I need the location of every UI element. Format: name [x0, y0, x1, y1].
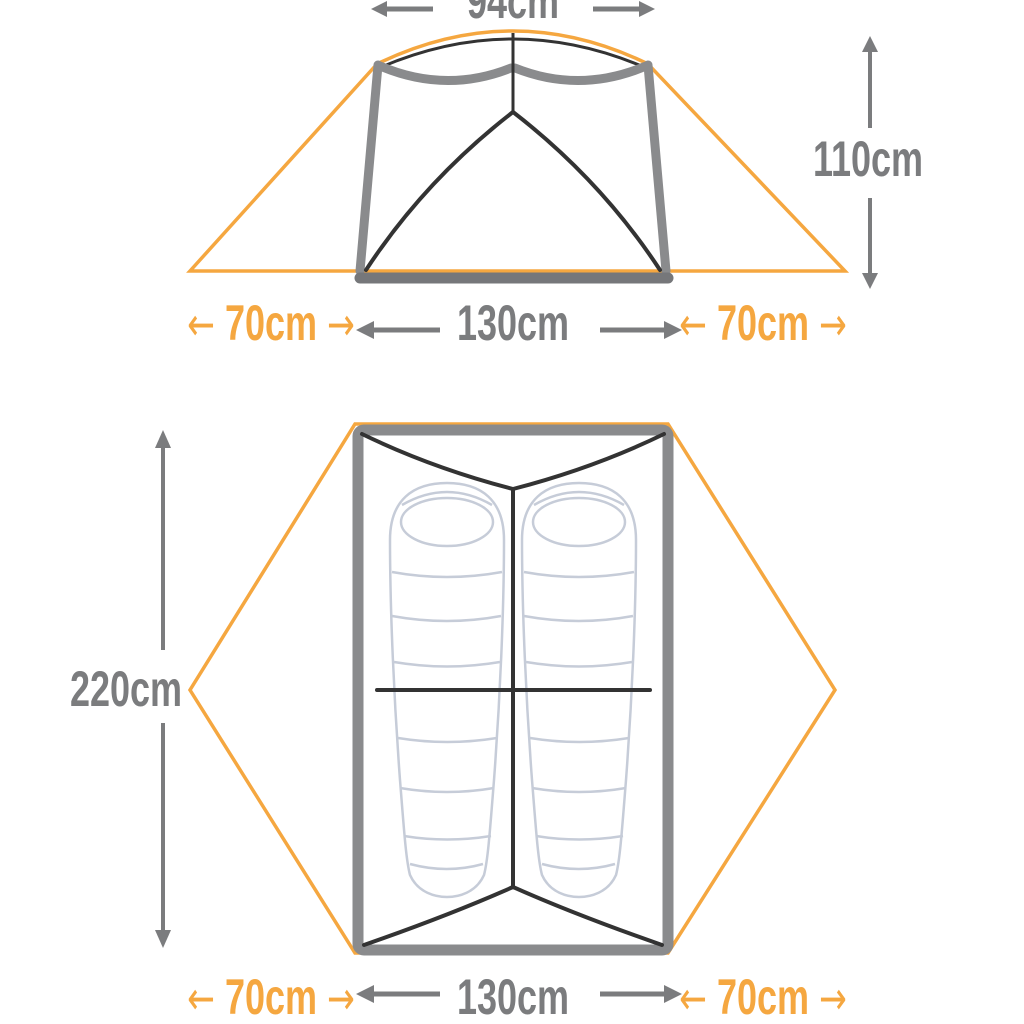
length-label: 220cm — [70, 664, 182, 714]
height-label: 110cm — [813, 134, 923, 184]
floor-plan — [190, 424, 835, 953]
top-width-arrow-left-head — [371, 1, 387, 17]
left-arrow-icon: ← — [187, 971, 215, 1024]
front-floor-width-label: 130cm — [457, 298, 569, 348]
right-arrow-icon: → — [327, 297, 355, 351]
top-width-arrow-right-head — [639, 1, 655, 17]
left-arrow-icon: ← — [679, 971, 707, 1024]
plan-width-arrow-left-head — [356, 985, 374, 1003]
door-arch-left — [366, 112, 513, 270]
floor-width-arrow-left-head — [356, 321, 374, 339]
length-arrow-up-head — [155, 430, 171, 448]
tent-dimensions-diagram: 94cm 110cm ←70cm→ 130cm ←70cm→ 220cm ←70… — [0, 0, 1024, 1024]
front-left-vestibule-label: ←70cm→ — [187, 298, 355, 349]
height-arrow-down-head — [862, 273, 878, 289]
side-pole-right — [648, 65, 666, 271]
canopy-edge-right — [515, 66, 646, 81]
front-right-vestibule-label: ←70cm→ — [679, 298, 847, 349]
right-arrow-icon: → — [819, 297, 847, 351]
plan-right-vestibule-label: ←70cm→ — [679, 972, 847, 1023]
front-elevation — [190, 31, 845, 278]
length-arrow-down-head — [155, 930, 171, 948]
plan-floor-width-label: 130cm — [457, 972, 569, 1022]
left-arrow-icon: ← — [187, 297, 215, 351]
left-arrow-icon: ← — [679, 297, 707, 351]
top-width-label: 94cm — [467, 0, 559, 26]
door-arch-right — [513, 112, 660, 270]
height-arrow-up-head — [862, 36, 878, 52]
side-pole-left — [360, 65, 378, 271]
canopy-edge-left — [380, 66, 511, 81]
right-arrow-icon: → — [819, 971, 847, 1024]
right-arrow-icon: → — [327, 971, 355, 1024]
plan-left-vestibule-label: ←70cm→ — [187, 972, 355, 1023]
